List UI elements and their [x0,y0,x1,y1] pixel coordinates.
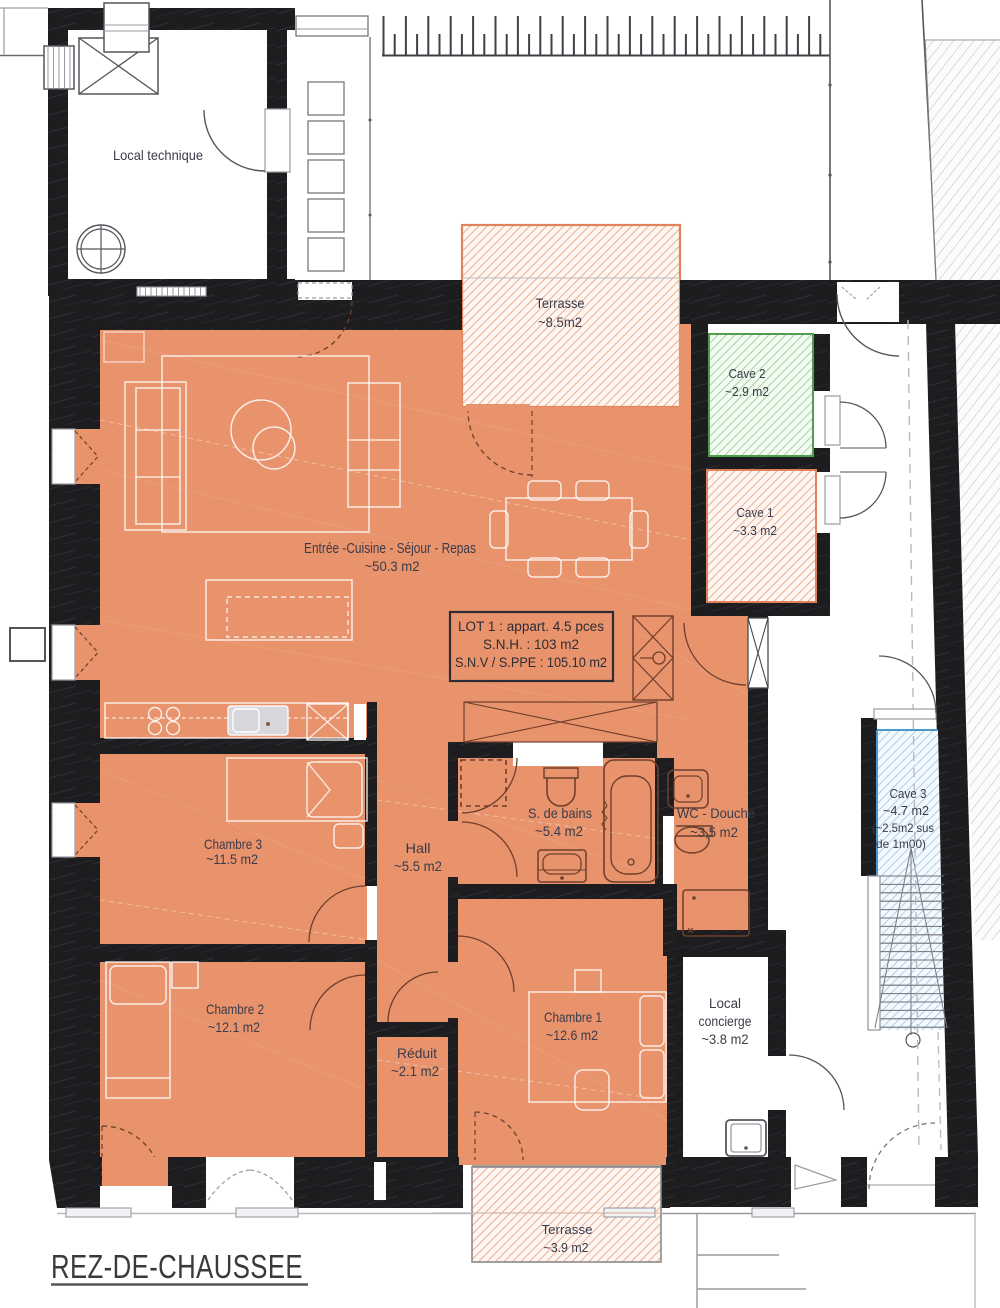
svg-text:(~2.5m2 sus: (~2.5m2 sus [872,821,934,835]
svg-text:Chambre 2: Chambre 2 [206,1001,264,1017]
svg-text:~5.4 m2: ~5.4 m2 [535,823,583,839]
svg-text:Cave 1: Cave 1 [737,506,774,520]
svg-text:~50.3 m2: ~50.3 m2 [365,558,420,574]
svg-text:~3.9 m2: ~3.9 m2 [544,1241,589,1255]
svg-text:concierge: concierge [699,1014,752,1029]
svg-text:Local: Local [709,996,741,1011]
svg-text:Entrée -Cuisine - Séjour - Rep: Entrée -Cuisine - Séjour - Repas [304,541,476,557]
svg-text:Chambre 1: Chambre 1 [544,1009,602,1025]
svg-text:~3.8 m2: ~3.8 m2 [702,1032,749,1047]
svg-text:~12.6 m2: ~12.6 m2 [546,1027,598,1043]
svg-text:Cave 2: Cave 2 [729,367,766,381]
svg-text:~5.5 m2: ~5.5 m2 [394,858,442,874]
svg-text:Hall: Hall [406,840,431,856]
svg-text:~8.5m2: ~8.5m2 [538,315,582,330]
svg-text:~2.9 m2: ~2.9 m2 [725,385,769,399]
svg-text:Local technique: Local technique [113,147,203,163]
svg-text:S.N.V / S.PPE : 105.10 m2: S.N.V / S.PPE : 105.10 m2 [455,655,607,670]
svg-text:Terrasse: Terrasse [542,1223,593,1237]
svg-text:~3,5 m2: ~3,5 m2 [690,824,738,840]
svg-text:S.N.H. : 103 m2: S.N.H. : 103 m2 [483,637,579,652]
svg-text:~12.1 m2: ~12.1 m2 [208,1019,260,1035]
svg-text:REZ-DE-CHAUSSEE: REZ-DE-CHAUSSEE [51,1248,303,1285]
svg-text:~11.5 m2: ~11.5 m2 [206,851,258,867]
svg-text:LOT 1 : appart. 4.5 pces: LOT 1 : appart. 4.5 pces [458,619,604,634]
svg-text:Terrasse: Terrasse [536,296,585,311]
svg-text:~2.1 m2: ~2.1 m2 [391,1063,439,1079]
svg-text:~4.7 m2: ~4.7 m2 [883,804,929,818]
svg-text:~3.3 m2: ~3.3 m2 [733,524,777,538]
svg-text:WC - Douche: WC - Douche [677,805,755,821]
svg-text:de 1m00): de 1m00) [876,837,926,851]
svg-text:Cave 3: Cave 3 [890,787,927,801]
svg-text:Réduit: Réduit [397,1045,437,1061]
svg-text:Chambre 3: Chambre 3 [204,836,262,852]
svg-text:S. de bains: S. de bains [528,805,592,821]
